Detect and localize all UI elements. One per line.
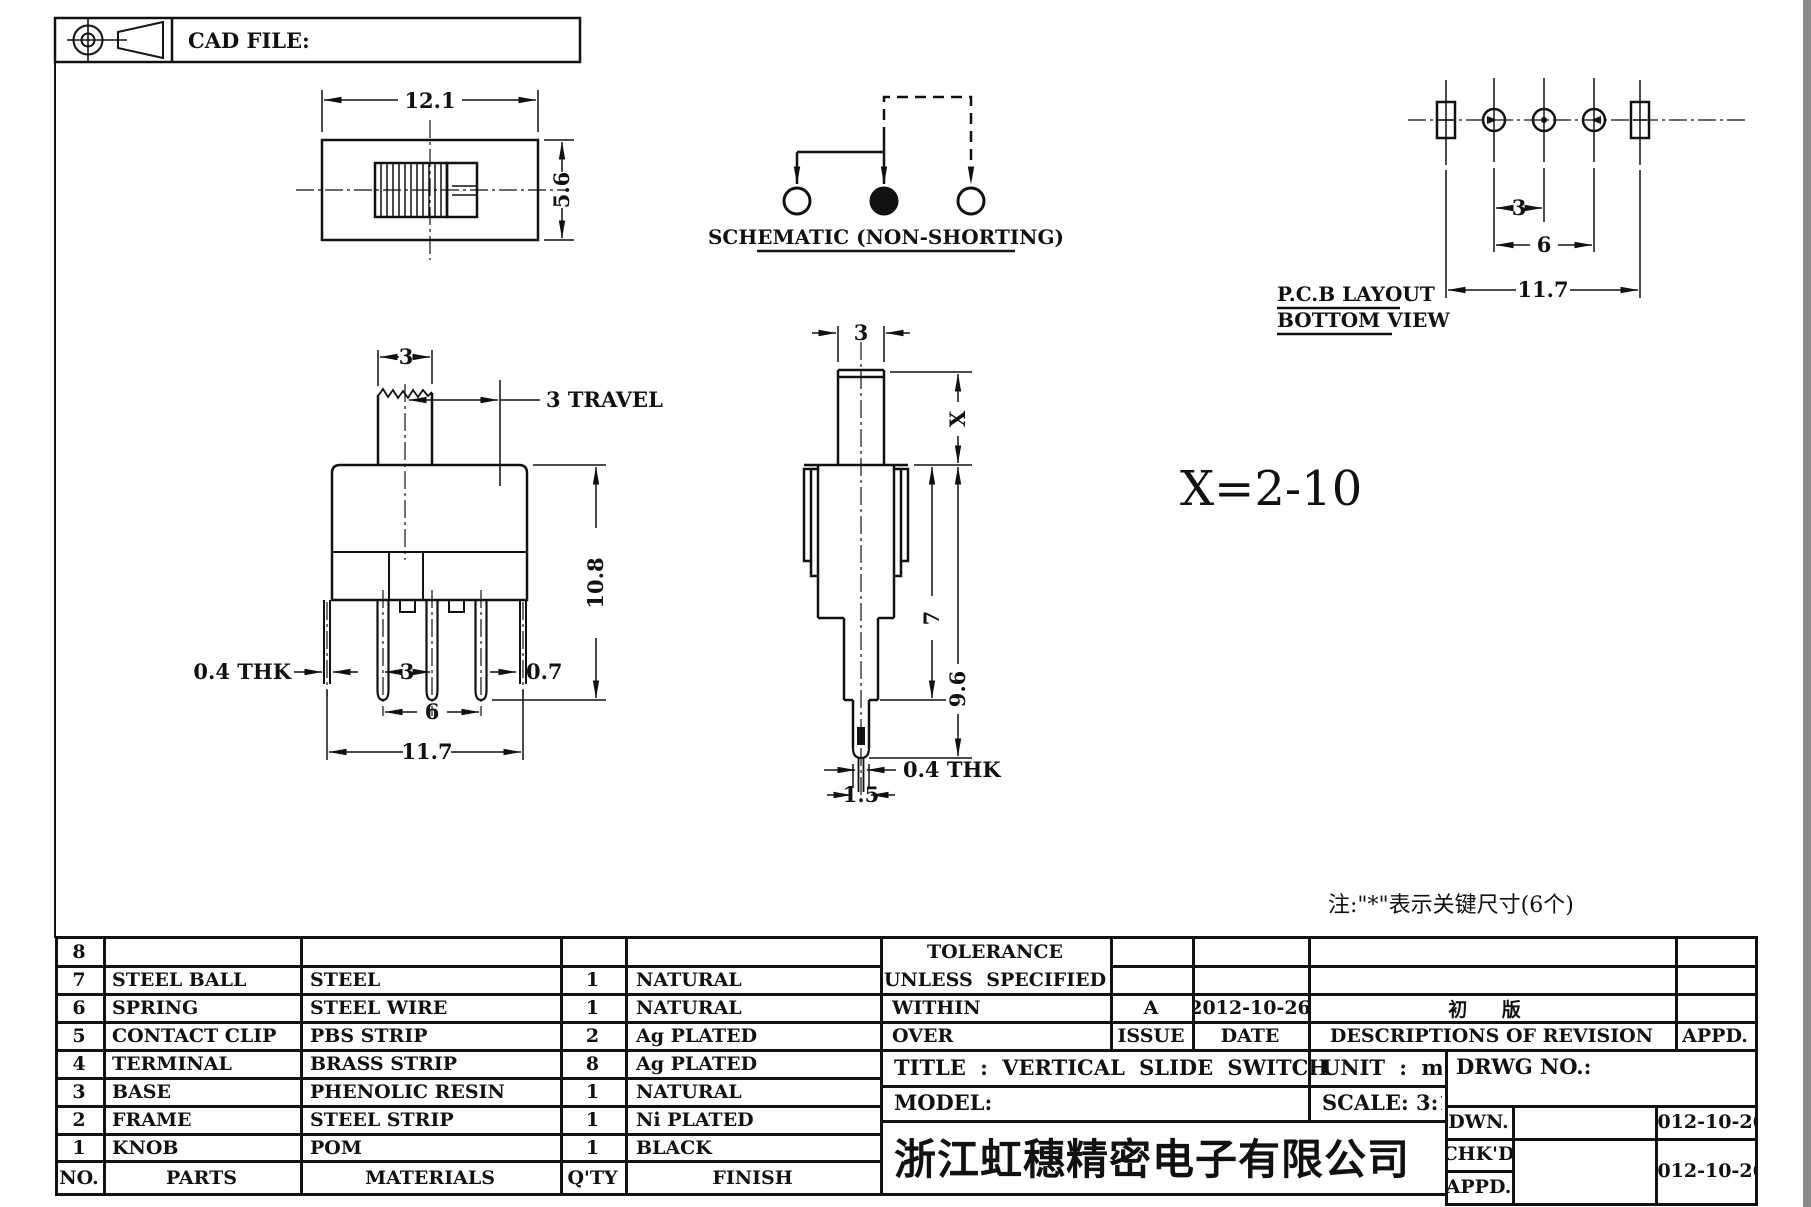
chkd-label: CHK'D: [1445, 1138, 1512, 1170]
row-finish: NATURAL: [636, 994, 876, 1022]
descriptions-label: DESCRIPTIONS OF REVISION: [1308, 1022, 1675, 1050]
row-no: 7: [55, 966, 103, 994]
drawing-canvas: CAD FILE: 12.1 5.6: [0, 0, 1811, 940]
dim-pcb-span: 6: [1537, 232, 1552, 257]
tolerance-label: TOLERANCE: [880, 938, 1110, 966]
chkd-date: 2012-10-26: [1655, 1138, 1755, 1203]
dim-front-pitch: 3: [400, 659, 415, 684]
row-materials: STEEL STRIP: [310, 1106, 556, 1134]
row-finish: NATURAL: [636, 966, 876, 994]
row-finish: Ni PLATED: [636, 1106, 876, 1134]
row-materials: PBS STRIP: [310, 1022, 556, 1050]
row-parts: TERMINAL: [112, 1050, 298, 1078]
row-qty: 1: [560, 1078, 625, 1106]
drwg-no-label: DRWG NO.:: [1456, 1052, 1751, 1080]
dwn-date: 2012-10-26: [1655, 1105, 1755, 1138]
row-no: 4: [55, 1050, 103, 1078]
row-parts: SPRING: [112, 994, 298, 1022]
dim-side-knob: 3: [854, 320, 869, 345]
key-dimension-note: 注:"*"表示关键尺寸(6个): [1328, 893, 1574, 918]
dim-side-x: X: [945, 410, 970, 427]
pcb-subtitle: BOTTOM VIEW: [1277, 308, 1450, 332]
dim-side-tip: 1.5: [843, 782, 880, 807]
row-finish: BLACK: [636, 1134, 876, 1162]
scale-label: SCALE: 3:1: [1322, 1085, 1442, 1120]
issue-label: ISSUE: [1110, 1022, 1192, 1050]
parts-header-qty: Q'TY: [560, 1162, 625, 1193]
row-parts: FRAME: [112, 1106, 298, 1134]
schematic-caption: SCHEMATIC (NON-SHORTING): [708, 225, 1064, 249]
dim-side-height: 9.6: [945, 671, 970, 708]
over-label: OVER: [892, 1022, 1108, 1050]
date-label: DATE: [1192, 1022, 1308, 1050]
pcb-title: P.C.B LAYOUT: [1277, 282, 1435, 306]
cad-file-label: CAD FILE:: [188, 28, 310, 53]
row-materials: POM: [310, 1134, 556, 1162]
projection-symbol-icon: [67, 19, 163, 61]
row-materials: STEEL: [310, 966, 556, 994]
dim-side-thk: 0.4 THK: [903, 757, 1001, 782]
row-materials: BRASS STRIP: [310, 1050, 556, 1078]
dim-front-edge: 0.7: [526, 659, 563, 684]
row-finish: NATURAL: [636, 1078, 876, 1106]
row-no: 1: [55, 1134, 103, 1162]
dim-top-width: 12.1: [404, 88, 455, 113]
right-edge-strip: [1803, 0, 1811, 1207]
row-materials: PHENOLIC RESIN: [310, 1078, 556, 1106]
drawing-sheet: CAD FILE: 12.1 5.6: [0, 0, 1811, 1207]
dim-pcb-total: 11.7: [1517, 277, 1568, 302]
centerlines: [327, 384, 523, 716]
row-qty: 1: [560, 994, 625, 1022]
issue-value: A: [1110, 994, 1192, 1022]
row-parts: CONTACT CLIP: [112, 1022, 298, 1050]
issue-date: 2012-10-26: [1192, 994, 1308, 1022]
dim-front-thk: 0.4 THK: [193, 659, 291, 684]
row-no: 3: [55, 1078, 103, 1106]
row-qty: 1: [560, 1134, 625, 1162]
row-parts: STEEL BALL: [112, 966, 298, 994]
row-parts: KNOB: [112, 1134, 298, 1162]
row-no: 5: [55, 1022, 103, 1050]
parts-header-materials: MATERIALS: [300, 1162, 560, 1193]
terminal-circle-common: [871, 188, 897, 214]
parts-header-parts: PARTS: [103, 1162, 300, 1193]
appd2-label: APPD.: [1445, 1170, 1512, 1203]
within-label: WITHIN: [892, 994, 1108, 1022]
row-qty: 2: [560, 1022, 625, 1050]
unit-label: UNIT : mm: [1322, 1049, 1442, 1085]
dim-front-height: 10.8: [583, 557, 608, 608]
dim-top-height: 5.6: [549, 172, 574, 209]
row-no: 2: [55, 1106, 103, 1134]
appd-label: APPD.: [1675, 1022, 1755, 1050]
x-range-label: X=2-10: [1180, 461, 1362, 517]
row-materials: STEEL WIRE: [310, 994, 556, 1022]
parts-header-no: NO.: [55, 1162, 103, 1193]
row-qty: 8: [560, 1050, 625, 1078]
revision-description: 初 版: [1308, 994, 1675, 1022]
terminal-circle-right: [958, 188, 984, 214]
company-name: 浙江虹穗精密电子有限公司: [894, 1120, 1442, 1193]
terminal-circle-left: [784, 188, 810, 214]
dim-pcb-pitch: 3: [1512, 195, 1527, 220]
side-view: [804, 326, 972, 806]
row-qty: 1: [560, 1106, 625, 1134]
dwn-label: DWN.: [1445, 1105, 1512, 1138]
row-no: 8: [55, 938, 103, 966]
top-view: [296, 90, 574, 260]
dim-front-total: 11.7: [401, 739, 452, 764]
dim-front-span: 6: [425, 699, 440, 724]
row-finish: Ag PLATED: [636, 1050, 876, 1078]
tolerance-label2: UNLESS SPECIFIED: [880, 966, 1110, 994]
row-qty: 1: [560, 966, 625, 994]
sheet-frame: [55, 18, 580, 938]
parts-header-finish: FINISH: [625, 1162, 880, 1193]
row-finish: Ag PLATED: [636, 1022, 876, 1050]
dim-side-depth: 7: [919, 611, 944, 626]
dim-front-knob: 3: [399, 344, 414, 369]
dim-front-travel: 3 TRAVEL: [546, 387, 663, 412]
row-no: 6: [55, 994, 103, 1022]
dims: [812, 326, 972, 795]
row-parts: BASE: [112, 1078, 298, 1106]
